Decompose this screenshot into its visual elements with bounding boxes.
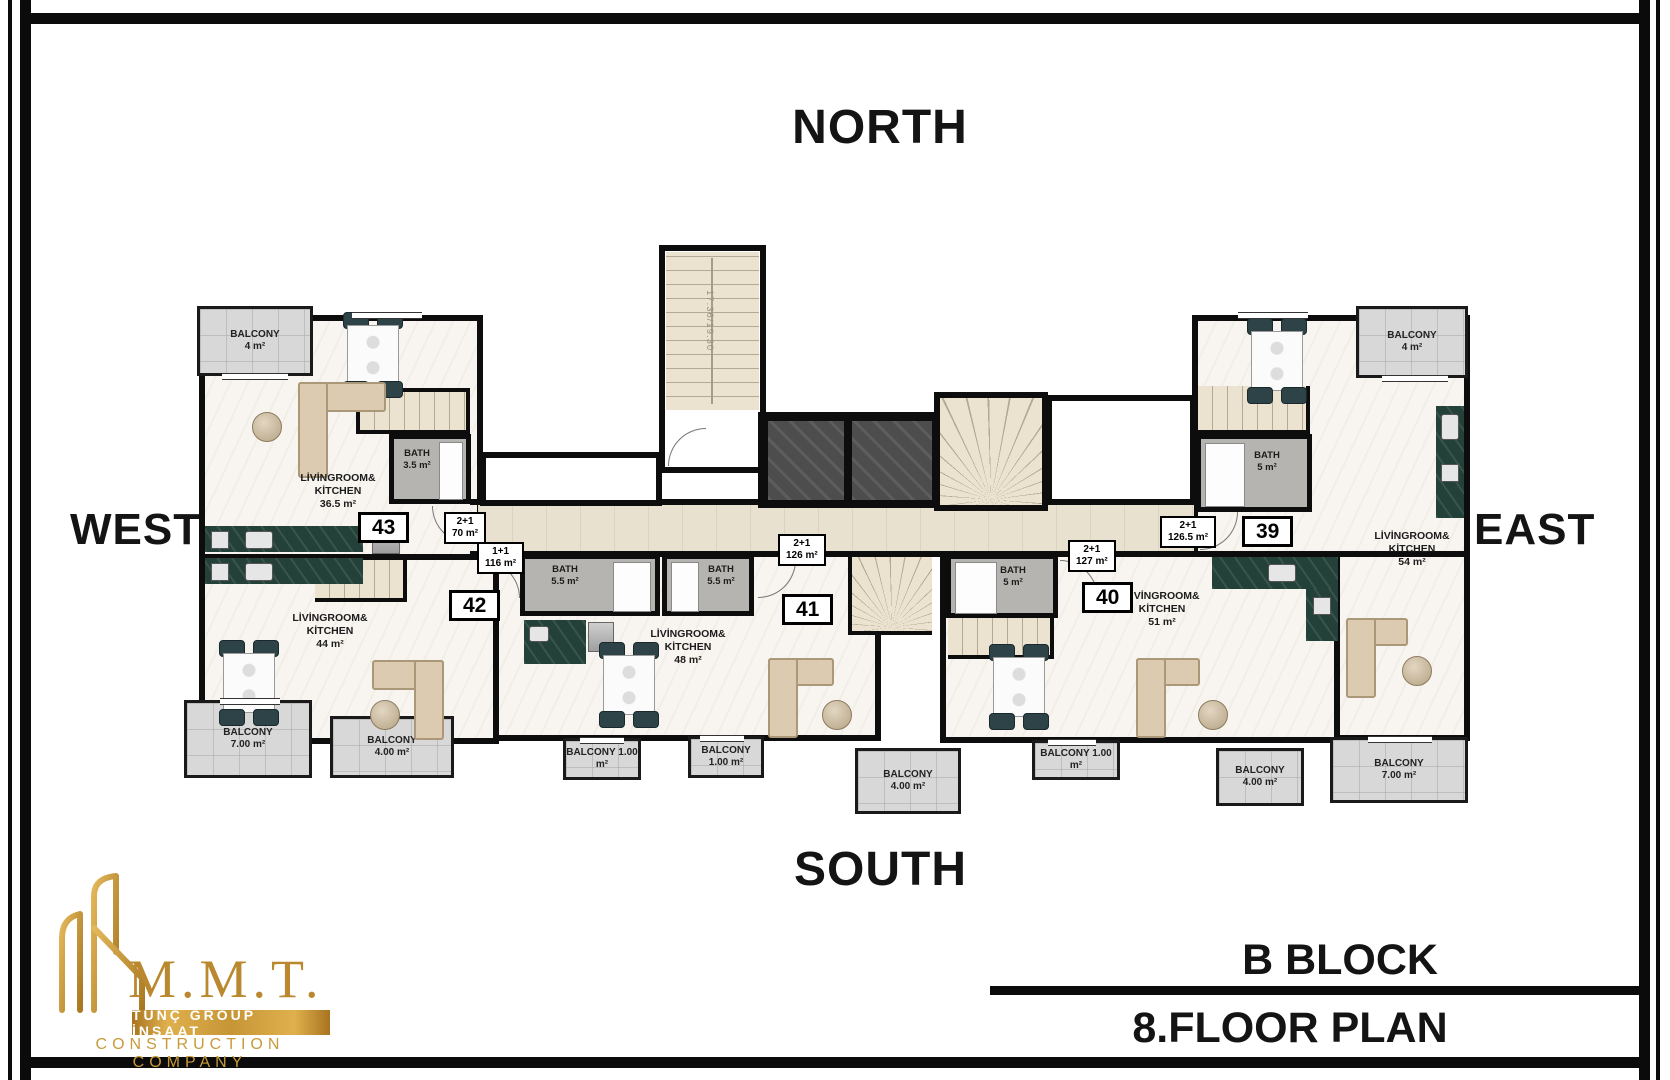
living-label-42: LİVİNGROOM&KİTCHEN44 m² xyxy=(270,612,390,651)
lightwell-left xyxy=(480,452,662,506)
unit-type-43: 2+170 m² xyxy=(444,512,486,544)
balcony-43: BALCONY4 m² xyxy=(197,306,313,376)
sofa-39-return xyxy=(1346,618,1376,698)
balcony-40-b: BALCONY4.00 m² xyxy=(1216,748,1304,806)
side-table-43 xyxy=(252,412,282,442)
title-block-plan: 8.FLOOR PLAN xyxy=(1100,1004,1480,1053)
unit-type-40: 2+1127 m² xyxy=(1068,540,1116,572)
side-table-40 xyxy=(1198,700,1228,730)
unit-number-43: 43 xyxy=(358,512,409,543)
kitchen-41 xyxy=(524,620,586,664)
elevator-shaft-2 xyxy=(852,421,932,500)
kitchen-40-return xyxy=(1306,589,1338,641)
frame-left-thick xyxy=(20,0,31,1080)
frame-right-thin xyxy=(1656,0,1660,1080)
sink-icon xyxy=(1441,414,1459,440)
logo-subtitle: CONSTRUCTION COMPANY xyxy=(40,1036,340,1072)
title-block-line xyxy=(990,986,1639,995)
window xyxy=(1368,736,1432,743)
window xyxy=(222,373,288,380)
balcony-43-label: BALCONY4 m² xyxy=(230,329,279,354)
side-table-41 xyxy=(822,700,852,730)
balcony-41-a-label: BALCONY 1.00 m² xyxy=(566,747,638,772)
window xyxy=(700,735,744,742)
kitchen-39 xyxy=(1436,406,1464,518)
balcony-41-c-label: BALCONY4.00 m² xyxy=(883,769,932,794)
stove-icon xyxy=(211,531,229,549)
balcony-41-b-label: BALCONY 1.00 m² xyxy=(691,745,761,770)
compass-south: SOUTH xyxy=(788,842,973,897)
unit-type-39: 2+1126.5 m² xyxy=(1160,516,1216,548)
balcony-39-bottom-label: BALCONY7.00 m² xyxy=(1374,758,1423,783)
compass-west: WEST xyxy=(70,505,195,555)
window xyxy=(1382,375,1448,382)
balcony-39-top-label: BALCONY4 m² xyxy=(1387,330,1436,355)
sink-icon xyxy=(245,563,273,581)
bath-42-shower xyxy=(613,562,651,612)
sofa-43-return xyxy=(298,382,328,478)
balcony-41-b: BALCONY 1.00 m² xyxy=(688,736,764,778)
balcony-40-a-label: BALCONY 1.00 m² xyxy=(1035,748,1117,773)
lightwell-right xyxy=(1046,395,1196,505)
frame-left-thin xyxy=(8,0,12,1080)
window xyxy=(352,312,422,319)
bath-42-label: BATH5.5 m² xyxy=(530,564,600,588)
balcony-40-a: BALCONY 1.00 m² xyxy=(1032,740,1120,780)
balcony-41-c: BALCONY4.00 m² xyxy=(855,748,961,814)
bath-41-label: BATH5.5 m² xyxy=(690,564,752,588)
window xyxy=(580,737,624,744)
frame-right-thick xyxy=(1639,0,1650,1080)
sink-icon xyxy=(529,626,549,642)
compass-east: EAST xyxy=(1474,505,1594,555)
sink-icon xyxy=(245,531,273,549)
sofa-41-return xyxy=(768,658,798,738)
stove-icon xyxy=(1313,597,1331,615)
kitchen-43 xyxy=(205,526,363,552)
living-label-39: LİVİNGROOM&KİTCHEN54 m² xyxy=(1352,530,1472,569)
dining-set-39 xyxy=(1244,318,1308,402)
stove-icon xyxy=(211,563,229,581)
logo-initials: M.M.T. xyxy=(128,948,324,1010)
balcony-42-a-label: BALCONY7.00 m² xyxy=(223,727,272,752)
title-block-name: B BLOCK xyxy=(1150,936,1530,985)
dining-set-40 xyxy=(986,644,1050,728)
side-table-42 xyxy=(370,700,400,730)
balcony-41-a: BALCONY 1.00 m² xyxy=(563,738,641,780)
frame-top xyxy=(20,13,1650,24)
side-table-39 xyxy=(1402,656,1432,686)
window xyxy=(220,698,280,705)
balcony-39-bottom: BALCONY7.00 m² xyxy=(1330,737,1468,803)
kitchen-40 xyxy=(1212,557,1338,589)
bath-39-label: BATH5 m² xyxy=(1234,450,1300,474)
balcony-42-b-label: BALCONY4.00 m² xyxy=(367,735,416,760)
unit-41-stair xyxy=(848,557,932,635)
elevator-shaft-1 xyxy=(768,421,844,500)
sofa-40-return xyxy=(1136,658,1166,738)
unit-number-40: 40 xyxy=(1082,582,1133,613)
living-label-41: LİVİNGROOM&KİTCHEN48 m² xyxy=(628,628,748,667)
unit-number-41: 41 xyxy=(782,594,833,625)
logo-band: TUNÇ GROUP İNŞAAT xyxy=(132,1010,330,1035)
unit-number-39: 39 xyxy=(1242,516,1293,547)
compass-north: NORTH xyxy=(790,100,970,155)
bath-43-label: BATH3.5 m² xyxy=(384,448,450,472)
stair-dimension-text: 17.36/19.30 xyxy=(704,290,715,351)
dining-set-42 xyxy=(216,640,280,724)
core-stair-winder xyxy=(940,398,1042,505)
kitchen-42 xyxy=(205,558,363,584)
unit-type-42: 1+1116 m² xyxy=(477,542,524,574)
living-label-43: LİVİNGROOM&KİTCHEN36.5 m² xyxy=(278,472,398,511)
unit-number-42: 42 xyxy=(449,590,500,621)
balcony-40-b-label: BALCONY4.00 m² xyxy=(1235,765,1284,790)
balcony-39-top: BALCONY4 m² xyxy=(1356,306,1468,378)
stove-icon xyxy=(1441,464,1459,482)
window xyxy=(1238,312,1308,319)
window xyxy=(1048,739,1096,746)
floor-plan-page: NORTH SOUTH WEST EAST 17.36/19.30 BALCON… xyxy=(0,0,1670,1080)
sink-icon xyxy=(1268,564,1296,582)
bath-40-label: BATH5 m² xyxy=(978,565,1048,589)
unit-type-41: 2+1126 m² xyxy=(778,534,826,566)
sofa-42-return xyxy=(414,660,444,740)
